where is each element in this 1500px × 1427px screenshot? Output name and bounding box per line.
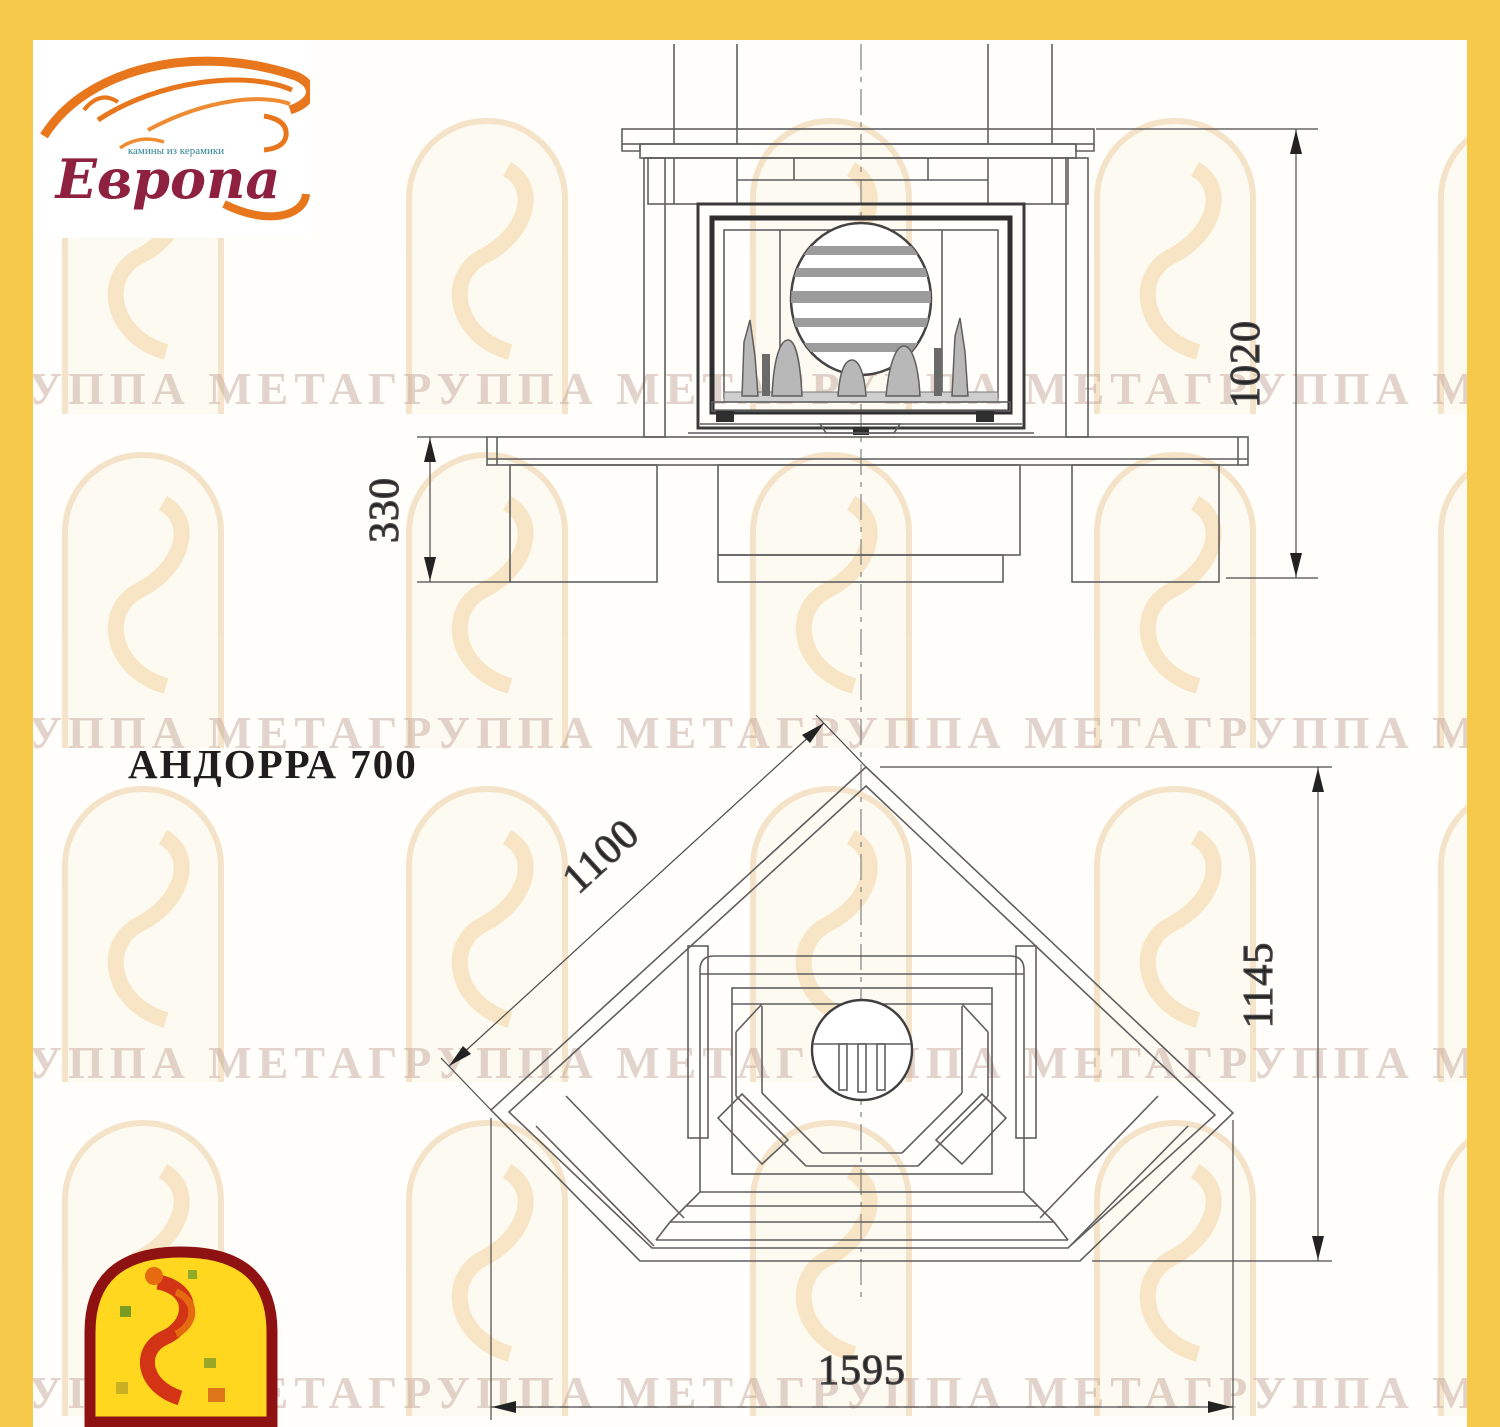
front-elevation-view: 1020 330 <box>362 44 1318 582</box>
dimension-label-330: 330 <box>362 477 408 543</box>
firebox <box>688 204 1034 435</box>
europa-logo: камины из керамики Европа <box>28 36 310 238</box>
dimension-width: 1595 <box>491 1118 1233 1420</box>
plan-firebox-unit <box>700 956 1024 1192</box>
model-title: АНДОРРА 700 <box>128 740 418 788</box>
fan-circle <box>812 1000 912 1100</box>
dimension-label-1100: 1100 <box>554 810 649 902</box>
left-column <box>644 158 665 437</box>
dimension-total-height: 1020 <box>1096 129 1318 578</box>
arch-window-shape <box>90 1252 272 1422</box>
hearth-slab <box>487 437 1248 465</box>
frieze-band <box>648 158 1068 204</box>
meta-arch-logo <box>80 1240 285 1427</box>
mantel-shelf <box>622 129 1094 158</box>
wedge-left <box>718 1094 788 1164</box>
drawing-sheet: ГРУППА МЕТАГРУППА МЕТАГРУППА МЕТАГРУППА … <box>0 0 1500 1427</box>
dimension-side: 1100 <box>441 715 866 1110</box>
dimension-label-1020: 1020 <box>1223 320 1269 408</box>
plan-side-benches <box>536 1096 1188 1246</box>
logo-brand-text: Европа <box>54 147 281 211</box>
frame-border-right <box>1467 0 1500 1427</box>
base-pedestals <box>510 465 1219 582</box>
plan-view: 1100 1145 1595 <box>441 715 1332 1420</box>
dimension-depth: 1145 <box>880 767 1332 1261</box>
frame-border-top <box>0 0 1500 40</box>
right-column <box>1066 158 1088 437</box>
dimension-label-1145: 1145 <box>1236 942 1282 1028</box>
dimension-label-1595: 1595 <box>818 1348 906 1394</box>
plan-front-steps <box>656 1192 1068 1240</box>
wedge-right <box>936 1094 1006 1164</box>
frame-border-left <box>0 0 33 1427</box>
